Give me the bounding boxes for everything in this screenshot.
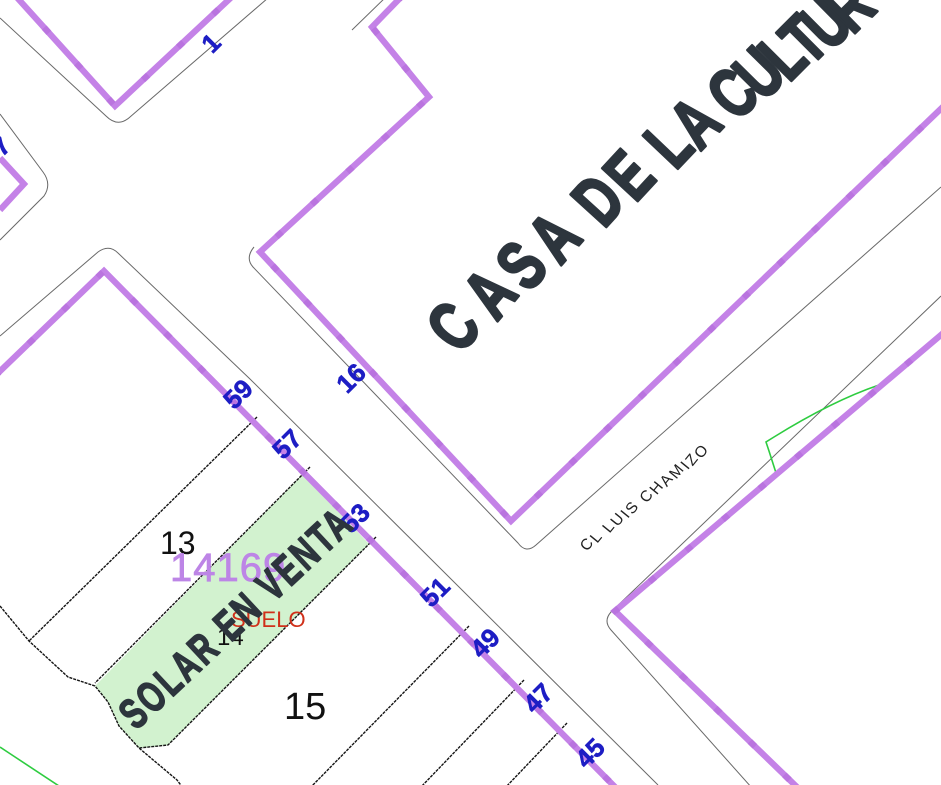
svg-text:15: 15 xyxy=(284,686,326,728)
